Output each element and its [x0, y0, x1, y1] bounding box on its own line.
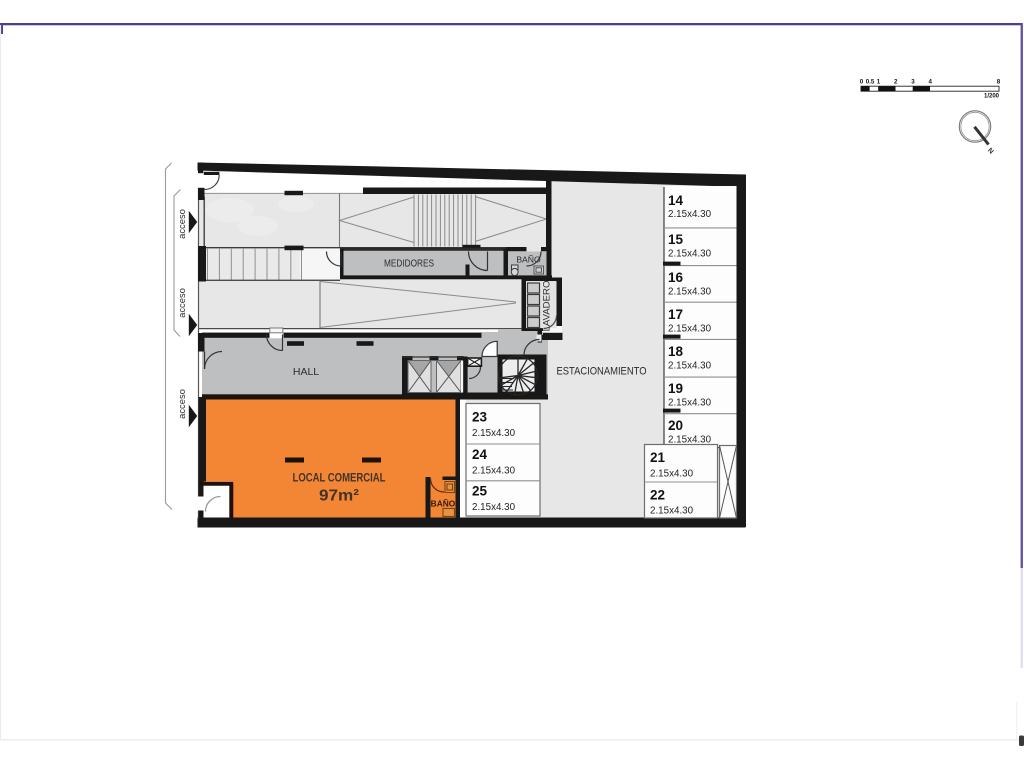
- svg-text:acceso: acceso: [176, 288, 187, 318]
- svg-text:17: 17: [668, 307, 683, 322]
- svg-text:2.15x4.30: 2.15x4.30: [650, 506, 694, 517]
- svg-text:2.15x4.30: 2.15x4.30: [668, 249, 712, 260]
- svg-text:97m²: 97m²: [319, 488, 359, 505]
- svg-text:24: 24: [472, 447, 488, 462]
- svg-text:LAVADERO: LAVADERO: [541, 281, 552, 332]
- svg-text:2.15x4.30: 2.15x4.30: [668, 398, 712, 409]
- svg-text:2.15x4.30: 2.15x4.30: [668, 209, 712, 220]
- svg-text:21: 21: [650, 450, 666, 465]
- svg-text:23: 23: [472, 410, 488, 425]
- svg-text:1: 1: [877, 79, 881, 86]
- svg-text:14: 14: [668, 193, 684, 208]
- svg-text:2.15x4.30: 2.15x4.30: [668, 361, 712, 372]
- svg-text:LOCAL COMERCIAL: LOCAL COMERCIAL: [293, 471, 386, 485]
- svg-text:acceso: acceso: [176, 389, 187, 419]
- svg-text:2: 2: [894, 79, 898, 86]
- svg-text:2.15x4.30: 2.15x4.30: [668, 324, 712, 335]
- svg-text:acceso: acceso: [176, 209, 187, 239]
- svg-text:2.15x4.30: 2.15x4.30: [650, 469, 694, 480]
- svg-text:2.15x4.30: 2.15x4.30: [472, 502, 516, 513]
- svg-text:25: 25: [472, 484, 488, 499]
- svg-text:2.15x4.30: 2.15x4.30: [668, 435, 712, 446]
- svg-text:2.15x4.30: 2.15x4.30: [668, 287, 712, 298]
- svg-text:0: 0: [860, 79, 864, 86]
- svg-text:1/200: 1/200: [984, 94, 1000, 100]
- svg-text:16: 16: [668, 270, 684, 285]
- svg-text:MEDIDORES: MEDIDORES: [384, 259, 434, 270]
- svg-text:0.5: 0.5: [866, 79, 875, 86]
- svg-text:8: 8: [997, 79, 1001, 86]
- svg-text:15: 15: [668, 232, 684, 247]
- svg-text:2.15x4.30: 2.15x4.30: [472, 466, 516, 477]
- svg-text:3: 3: [911, 79, 915, 86]
- svg-text:18: 18: [668, 344, 684, 359]
- svg-text:BAÑO: BAÑO: [516, 255, 541, 265]
- svg-text:ESTACIONAMIENTO: ESTACIONAMIENTO: [557, 366, 647, 378]
- svg-text:2.15x4.30: 2.15x4.30: [472, 428, 516, 439]
- svg-text:20: 20: [668, 418, 683, 433]
- svg-text:19: 19: [668, 381, 683, 396]
- svg-text:HALL: HALL: [293, 366, 319, 378]
- svg-text:22: 22: [650, 488, 665, 503]
- svg-text:4: 4: [928, 79, 932, 86]
- svg-text:BAÑO: BAÑO: [431, 499, 456, 509]
